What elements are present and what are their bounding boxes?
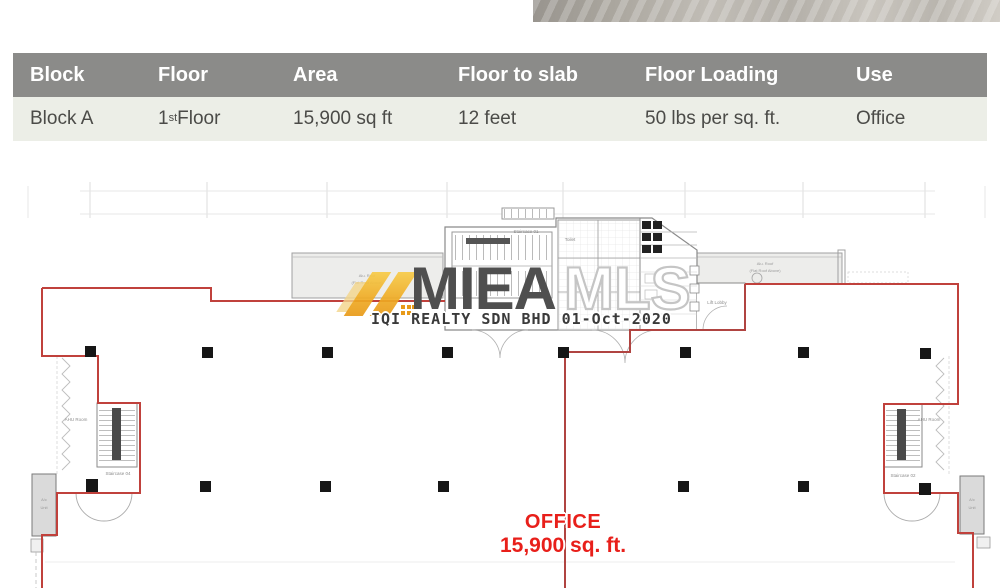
- cell-floor: 1st Floor: [141, 97, 276, 141]
- service-core: [445, 208, 762, 363]
- spec-table: Block Floor Area Floor to slab Floor Loa…: [13, 53, 987, 141]
- bottom-details: [31, 537, 990, 588]
- col-header-floor-to-slab: Floor to slab: [441, 53, 628, 97]
- columns: [85, 346, 931, 495]
- door-arcs-right: [884, 493, 940, 521]
- col-header-block: Block: [13, 53, 141, 97]
- floor-word: Floor: [177, 108, 220, 130]
- canopy-left: Alu. Roof (Flat Roof Above): [292, 253, 443, 298]
- canopy-right-label-1: Alu. Roof: [757, 261, 774, 266]
- col-header-floor-loading: Floor Loading: [628, 53, 839, 97]
- ac-box-left: A/c Unit: [32, 474, 56, 536]
- cell-floor-loading: 50 lbs per sq. ft.: [628, 97, 839, 141]
- cell-floor-to-slab: 12 feet: [441, 97, 628, 141]
- ac-box-left-label-2: Unit: [40, 505, 48, 510]
- staircase-01: [452, 232, 552, 298]
- canopy-right-label-2: (Flat Roof Above): [749, 268, 781, 273]
- staircase-01-label: Staircase 01: [513, 229, 539, 234]
- ahu-room-left: [57, 356, 70, 474]
- canopy-left-label-2: (Flat Roof Above): [351, 280, 383, 285]
- cell-use: Office: [839, 97, 987, 141]
- ac-box-right-label-2: Unit: [968, 505, 976, 510]
- floor-ordinal: st: [169, 113, 178, 124]
- table-row: Block A 1st Floor 15,900 sq ft 12 feet 5…: [13, 97, 987, 141]
- ac-box-right: A/c Unit: [960, 476, 984, 534]
- staircase-02: [884, 404, 922, 467]
- ac-box-left-label-1: A/c: [41, 497, 47, 502]
- col-header-area: Area: [276, 53, 441, 97]
- ahu-right-label: AHU Room: [918, 417, 941, 422]
- brochure-page: { "table": { "columns": ["Block", "Floor…: [0, 0, 1000, 588]
- ac-box-right-label-1: A/c: [969, 497, 975, 502]
- col-header-floor: Floor: [141, 53, 276, 97]
- site-photo: [533, 0, 1000, 22]
- staircase-04-label: Staircase 04: [105, 471, 131, 476]
- staircase-02-label: Staircase 02: [890, 473, 916, 478]
- ahu-left-label: AHU Room: [65, 417, 88, 422]
- spec-table-header: Block Floor Area Floor to slab Floor Loa…: [13, 53, 987, 97]
- toilet-label: Toilet: [565, 237, 576, 242]
- col-header-use: Use: [839, 53, 987, 97]
- ahu-room-right: [936, 356, 949, 474]
- floor-number: 1: [158, 108, 169, 130]
- floor-plan: Alu. Roof (Flat Roof Above) Alu. Roof (F…: [0, 175, 1000, 588]
- cell-area: 15,900 sq ft: [276, 97, 441, 141]
- cell-block: Block A: [13, 97, 141, 141]
- canopy-right: Alu. Roof (Flat Roof Above): [688, 250, 908, 284]
- door-arcs-left: [76, 493, 132, 521]
- lift-lobby-label: Lift Lobby: [707, 300, 727, 305]
- canopy-left-label-1: Alu. Roof: [359, 273, 376, 278]
- staircase-04: [97, 403, 137, 467]
